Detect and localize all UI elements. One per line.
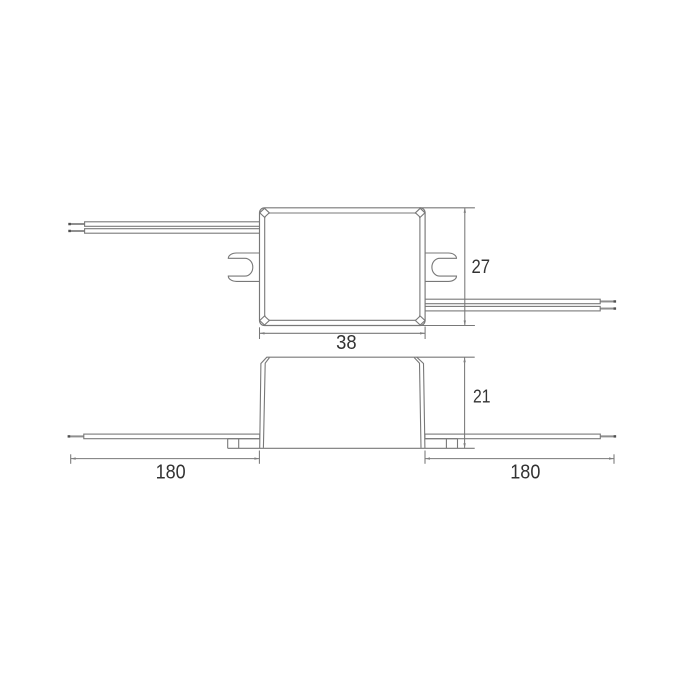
svg-text:180: 180 <box>156 461 186 483</box>
svg-text:27: 27 <box>472 256 491 277</box>
svg-text:21: 21 <box>473 385 490 407</box>
svg-text:38: 38 <box>336 332 356 354</box>
svg-text:180: 180 <box>510 461 540 483</box>
